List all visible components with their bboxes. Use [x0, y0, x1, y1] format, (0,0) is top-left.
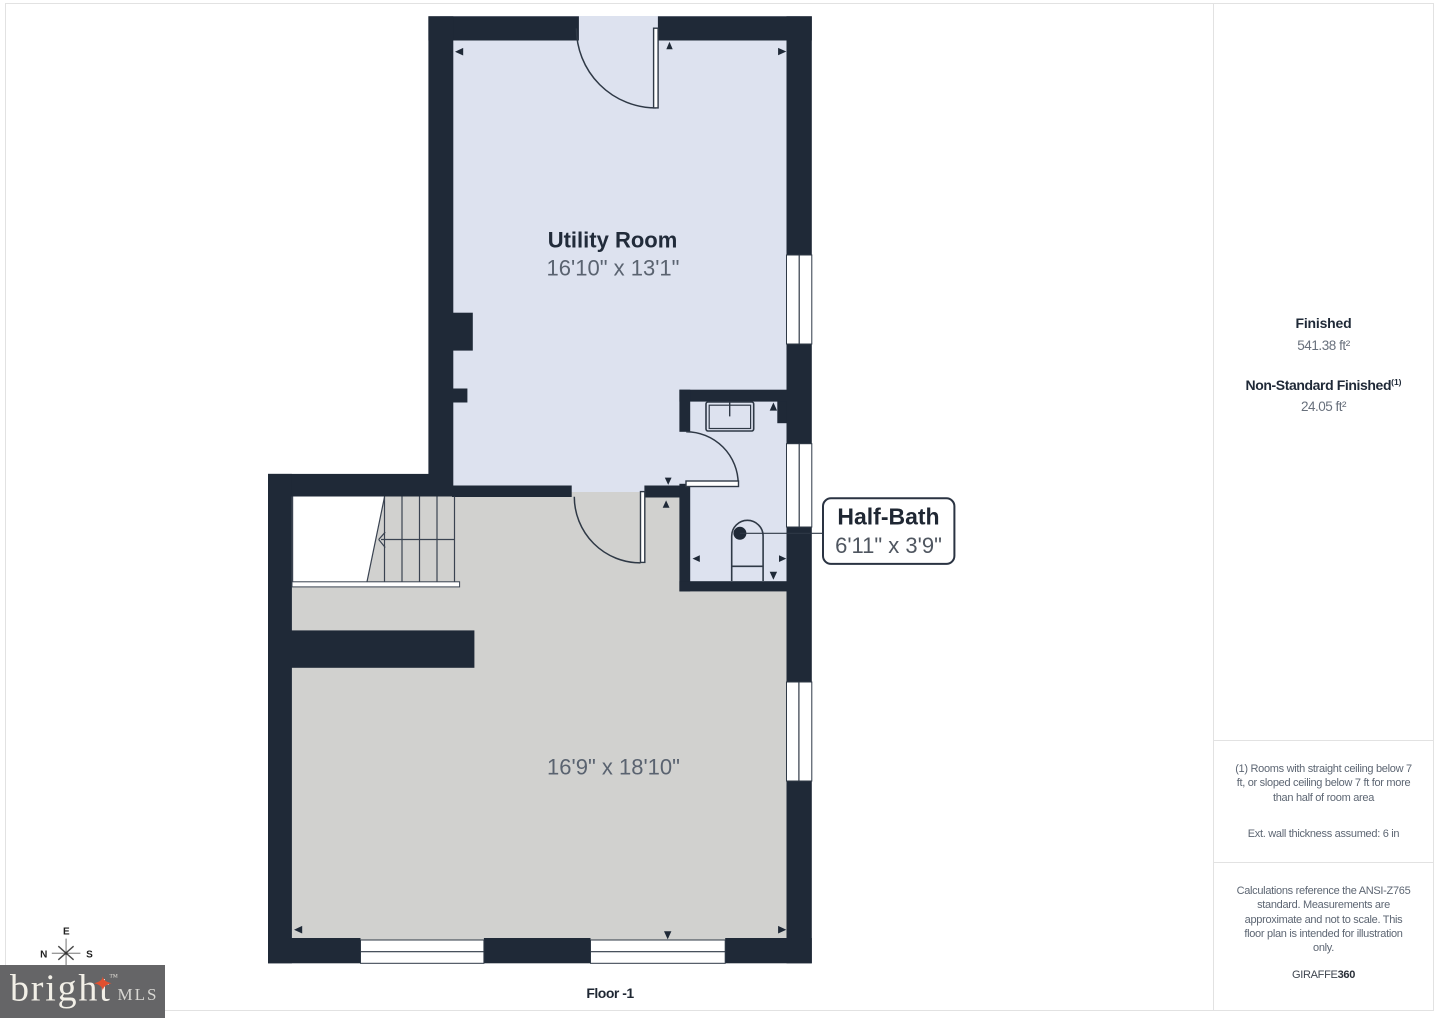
svg-text:E: E — [63, 927, 70, 938]
svg-text:S: S — [86, 949, 93, 960]
svg-text:bright: bright — [10, 968, 112, 1010]
svg-text:Floor -1: Floor -1 — [586, 985, 634, 1001]
svg-text:N: N — [40, 949, 47, 960]
svg-text:MLS: MLS — [118, 985, 159, 1004]
svg-text:Utility Room: Utility Room — [548, 228, 678, 253]
svg-text:Half-Bath: Half-Bath — [837, 504, 939, 530]
svg-text:TM: TM — [110, 974, 118, 980]
svg-text:6'11" x 3'9": 6'11" x 3'9" — [835, 533, 942, 558]
svg-text:16'10" x 13'1": 16'10" x 13'1" — [547, 256, 680, 281]
svg-text:16'9" x 18'10": 16'9" x 18'10" — [547, 755, 680, 780]
